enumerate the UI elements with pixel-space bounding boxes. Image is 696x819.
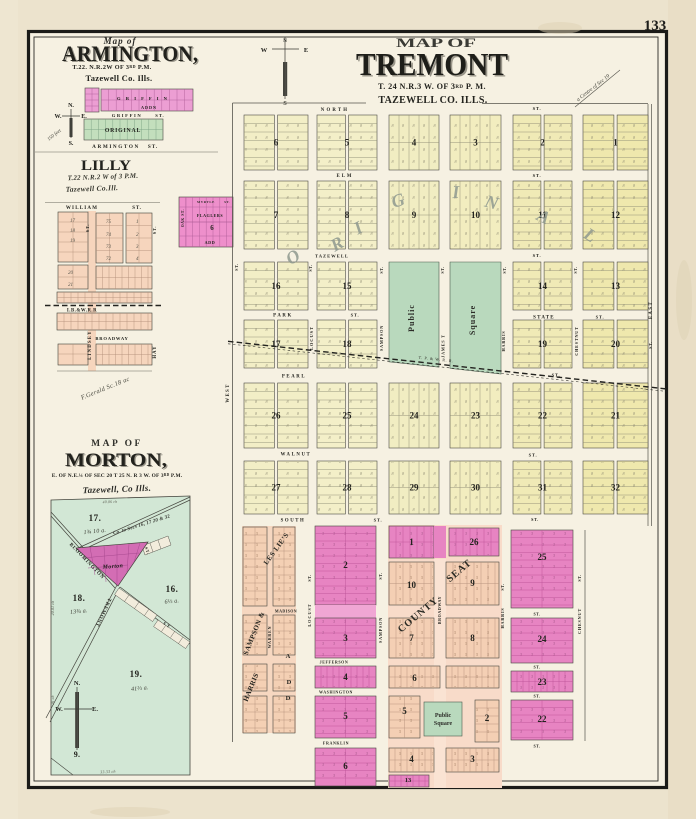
svg-text:24: 24 [410, 411, 420, 421]
svg-text:GRIFFIN: GRIFFIN [112, 113, 143, 118]
svg-text:3: 3 [343, 633, 348, 643]
svg-text:26 ch: 26 ch [51, 695, 55, 704]
svg-text:SAMPSON: SAMPSON [379, 325, 384, 351]
svg-text:2: 2 [343, 560, 348, 570]
svg-text:Square: Square [468, 305, 477, 335]
svg-text:FRANKLIN: FRANKLIN [323, 741, 349, 746]
svg-text:ST.: ST. [351, 313, 360, 318]
svg-text:ST.: ST. [500, 583, 505, 590]
svg-text:TAZEWELL: TAZEWELL [315, 254, 349, 259]
svg-text:24: 24 [538, 634, 548, 644]
svg-text:G R I F F I N: G R I F F I N [117, 96, 169, 101]
svg-text:ARMINGTON,: ARMINGTON, [62, 41, 198, 66]
svg-text:N.: N. [74, 680, 81, 687]
svg-text:21: 21 [611, 411, 621, 421]
svg-text:18.: 18. [73, 593, 86, 603]
svg-text:15: 15 [343, 281, 353, 291]
svg-text:2: 2 [540, 138, 545, 148]
svg-text:16: 16 [272, 281, 282, 291]
svg-text:E: E [304, 47, 308, 54]
svg-text:Public: Public [407, 304, 416, 332]
svg-text:28: 28 [343, 483, 353, 493]
svg-text:STATE: STATE [533, 316, 555, 321]
svg-text:6: 6 [412, 673, 417, 683]
svg-text:4: 4 [409, 754, 414, 764]
svg-text:ST.: ST. [307, 574, 312, 581]
svg-text:JEFFERSON: JEFFERSON [320, 660, 349, 665]
svg-text:ST.: ST. [533, 612, 540, 617]
svg-text:ST.: ST. [234, 263, 239, 271]
svg-text:27: 27 [272, 483, 282, 493]
svg-text:33.33 ch: 33.33 ch [100, 769, 116, 775]
svg-text:74: 74 [106, 233, 112, 238]
svg-text:EAST: EAST [649, 301, 654, 319]
svg-text:72: 72 [106, 257, 112, 262]
svg-text:16.: 16. [166, 584, 179, 594]
svg-text:E.: E. [81, 114, 87, 120]
svg-text:LOCUST: LOCUST [309, 326, 314, 350]
svg-text:WASHINGTON: WASHINGTON [319, 690, 353, 695]
svg-text:5: 5 [343, 711, 348, 721]
svg-text:SOUTH: SOUTH [281, 519, 306, 524]
svg-text:MADISON: MADISON [275, 609, 297, 614]
svg-text:ST.: ST. [379, 266, 384, 273]
svg-text:6: 6 [274, 138, 279, 148]
svg-text:ST.: ST. [648, 341, 653, 349]
svg-text:Tazewell Co. Ills.: Tazewell Co. Ills. [86, 73, 153, 83]
svg-text:JAMES T: JAMES T [441, 334, 446, 358]
svg-text:17: 17 [70, 219, 76, 224]
svg-text:ST.: ST. [502, 266, 507, 273]
svg-text:6: 6 [210, 224, 214, 232]
svg-text:ST.: ST. [85, 224, 90, 233]
svg-text:73: 73 [106, 245, 112, 250]
svg-text:75: 75 [106, 220, 112, 225]
svg-text:ST.: ST. [152, 226, 157, 235]
svg-text:NORTH: NORTH [321, 108, 349, 113]
svg-text:23: 23 [538, 677, 548, 687]
svg-text:OAK ST.: OAK ST. [181, 209, 185, 227]
svg-text:ST.: ST. [533, 106, 542, 111]
svg-text:29: 29 [410, 483, 420, 493]
svg-text:7: 7 [274, 210, 279, 220]
svg-text:3: 3 [470, 754, 475, 764]
svg-text:E. OF N.E.¼ OF SEC 20 T 25 N.: E. OF N.E.¼ OF SEC 20 T 25 N. R 3 W. OF … [52, 473, 183, 479]
svg-text:31: 31 [538, 483, 548, 493]
svg-text:BROADWAY: BROADWAY [95, 336, 128, 341]
svg-text:LINDSEY: LINDSEY [88, 330, 93, 360]
svg-text:17.: 17. [89, 513, 102, 523]
svg-text:ST.: ST. [374, 518, 383, 523]
svg-text:5: 5 [345, 138, 350, 148]
svg-text:ST.: ST. [148, 144, 158, 150]
svg-text:13: 13 [611, 281, 621, 291]
svg-text:8: 8 [470, 633, 475, 643]
svg-text:5: 5 [402, 706, 407, 716]
svg-text:HARRIS: HARRIS [501, 330, 506, 351]
svg-text:1: 1 [409, 537, 414, 547]
svg-text:MAP OF: MAP OF [91, 439, 143, 449]
svg-text:ST.: ST. [533, 665, 540, 670]
svg-text:40.06 ch: 40.06 ch [103, 500, 118, 505]
svg-text:9: 9 [412, 210, 417, 220]
svg-text:25: 25 [538, 552, 548, 562]
svg-text:ST.: ST. [308, 264, 313, 271]
svg-text:ST.: ST. [132, 206, 141, 211]
svg-text:MYRTLE: MYRTLE [197, 200, 215, 204]
svg-text:25: 25 [343, 411, 353, 421]
svg-text:3: 3 [473, 138, 478, 148]
svg-text:19: 19 [70, 239, 76, 244]
svg-text:ADDN: ADDN [141, 105, 157, 110]
svg-text:20.01 ch: 20.01 ch [51, 601, 55, 616]
svg-text:W: W [261, 47, 268, 54]
svg-text:T. 24 N.R.3 W. OF 3RD P. M.: T. 24 N.R.3 W. OF 3RD P. M. [378, 82, 486, 91]
svg-text:32: 32 [611, 483, 621, 493]
svg-text:N: N [283, 39, 287, 44]
svg-text:19: 19 [538, 339, 548, 349]
svg-text:Tazewell Co.Ill.: Tazewell Co.Ill. [65, 183, 118, 194]
svg-text:ST.: ST. [596, 315, 605, 320]
svg-text:ST.: ST. [440, 266, 445, 273]
svg-text:WILLIAM: WILLIAM [66, 206, 98, 211]
svg-text:SAMPSON: SAMPSON [378, 617, 383, 643]
svg-text:ST.: ST. [533, 744, 540, 749]
svg-text:ST.: ST. [529, 453, 538, 458]
svg-text:ST.: ST. [378, 572, 383, 579]
svg-text:17: 17 [272, 339, 282, 349]
svg-text:HAY: HAY [153, 345, 158, 358]
svg-text:1: 1 [136, 220, 139, 225]
svg-text:9: 9 [470, 578, 475, 588]
svg-text:ST.: ST. [573, 266, 578, 273]
svg-text:Public: Public [435, 713, 452, 719]
svg-text:CHESNUT: CHESNUT [577, 608, 582, 634]
svg-text:FLAGLERS: FLAGLERS [197, 213, 224, 218]
svg-text:W.: W. [55, 114, 62, 120]
svg-text:TAZEWELL CO. ILLS.: TAZEWELL CO. ILLS. [378, 95, 487, 106]
svg-text:26: 26 [470, 537, 480, 547]
svg-text:10: 10 [407, 580, 417, 590]
svg-text:18: 18 [70, 229, 76, 234]
svg-text:ORIGINAL: ORIGINAL [105, 128, 141, 134]
svg-text:N.: N. [68, 103, 74, 109]
svg-text:W.: W. [55, 706, 63, 713]
svg-text:ST.: ST. [155, 113, 164, 118]
svg-text:23: 23 [471, 411, 481, 421]
svg-text:7: 7 [409, 633, 414, 643]
svg-text:30: 30 [471, 483, 481, 493]
svg-text:20: 20 [68, 271, 74, 276]
svg-text:6: 6 [343, 761, 348, 771]
svg-text:13: 13 [405, 777, 412, 784]
svg-text:MORTON,: MORTON, [65, 450, 167, 471]
svg-text:T.22. N.R.2W OF 3RD P.M.: T.22. N.R.2W OF 3RD P.M. [72, 64, 151, 71]
svg-text:ST.: ST. [533, 253, 542, 258]
svg-text:HARRIS: HARRIS [500, 607, 505, 628]
svg-text:2: 2 [485, 713, 490, 723]
svg-text:WARREN: WARREN [267, 626, 272, 649]
svg-text:10: 10 [471, 210, 481, 220]
svg-text:Square: Square [434, 721, 453, 727]
svg-text:133: 133 [644, 18, 667, 34]
svg-text:9.: 9. [74, 750, 81, 759]
svg-text:ADD: ADD [205, 240, 216, 245]
svg-text:D: D [287, 679, 292, 686]
svg-text:S.: S. [69, 141, 74, 147]
svg-text:14: 14 [538, 281, 548, 291]
svg-text:ARMINGTON: ARMINGTON [92, 144, 140, 150]
svg-text:ELM: ELM [337, 174, 354, 179]
svg-text:WEST: WEST [226, 383, 231, 402]
svg-text:22: 22 [538, 714, 548, 724]
svg-text:LOCUST: LOCUST [307, 603, 312, 626]
svg-text:ST.: ST. [533, 694, 540, 699]
svg-text:CHESTNUT: CHESTNUT [574, 326, 579, 355]
svg-text:22: 22 [538, 411, 548, 421]
svg-text:4: 4 [343, 672, 348, 682]
svg-text:ST.: ST. [577, 574, 582, 581]
svg-text:20: 20 [611, 339, 621, 349]
svg-text:4: 4 [412, 138, 417, 148]
svg-text:ST.: ST. [533, 173, 542, 178]
svg-text:TREMONT: TREMONT [356, 46, 508, 82]
svg-text:ST.: ST. [531, 517, 539, 522]
svg-text:WALNUT: WALNUT [281, 453, 312, 458]
svg-text:21: 21 [68, 283, 73, 288]
svg-text:ST.: ST. [224, 200, 230, 204]
svg-text:1: 1 [613, 138, 618, 148]
svg-text:26: 26 [272, 411, 282, 421]
svg-text:12: 12 [611, 210, 621, 220]
svg-text:PARK: PARK [273, 314, 293, 319]
svg-text:19.: 19. [130, 669, 143, 679]
svg-text:PEARL: PEARL [282, 375, 306, 380]
svg-text:E.: E. [92, 706, 98, 713]
svg-text:A: A [286, 653, 291, 660]
svg-text:D: D [286, 695, 291, 702]
svg-text:18: 18 [343, 339, 353, 349]
svg-text:8: 8 [345, 210, 350, 220]
